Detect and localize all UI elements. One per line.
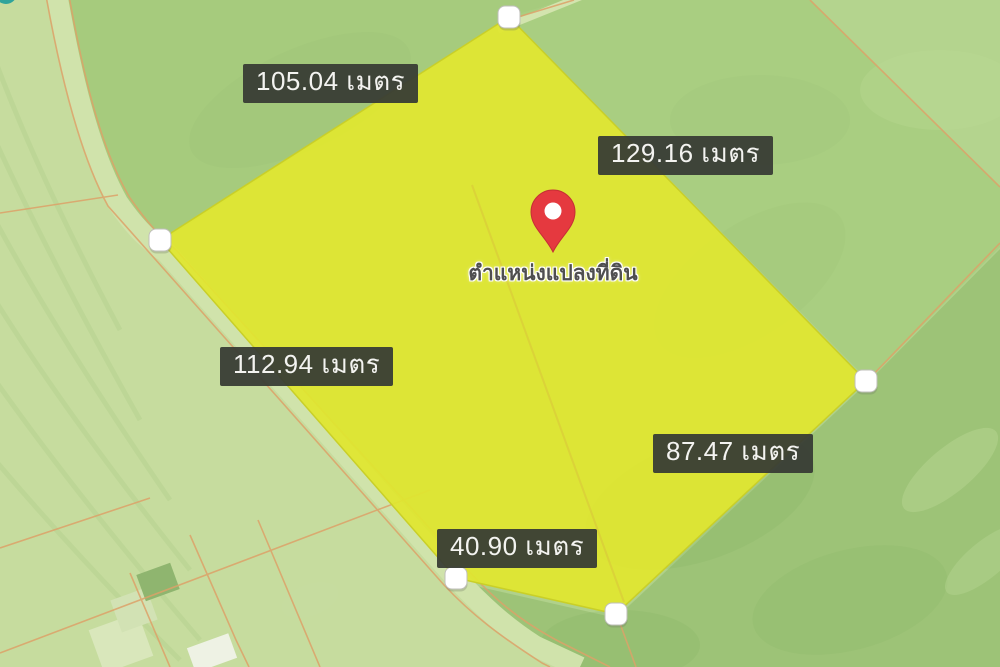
vertex-marker[interactable] bbox=[605, 603, 628, 628]
measurement-label-northwest: 105.04 เมตร bbox=[243, 64, 418, 103]
vertex-marker[interactable] bbox=[149, 229, 172, 254]
vertex-marker[interactable] bbox=[445, 567, 468, 592]
pin-inner-circle bbox=[545, 203, 562, 220]
measurement-label-west: 112.94 เมตร bbox=[220, 347, 393, 386]
measurement-label-south: 40.90 เมตร bbox=[437, 529, 597, 568]
map-canvas[interactable]: 105.04 เมตร 129.16 เมตร 112.94 เมตร 87.4… bbox=[0, 0, 1000, 667]
vertex-marker[interactable] bbox=[498, 6, 521, 31]
pin-caption: ตำแหน่งแปลงที่ดิน bbox=[468, 257, 637, 290]
measurement-label-northeast: 129.16 เมตร bbox=[598, 136, 773, 175]
measurement-label-southeast: 87.47 เมตร bbox=[653, 434, 813, 473]
vertex-marker[interactable] bbox=[855, 370, 878, 395]
